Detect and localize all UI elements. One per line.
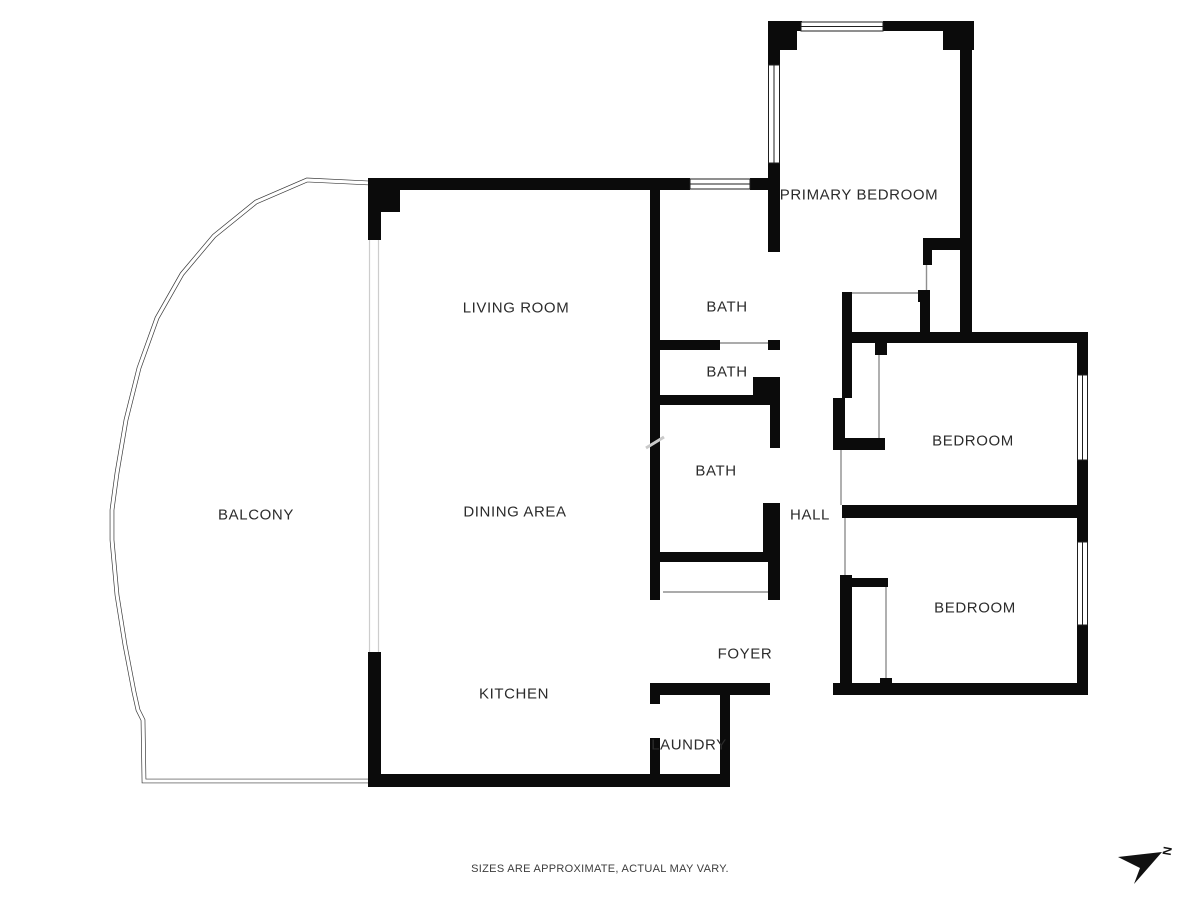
room-label-bedroom-2: BEDROOM <box>934 600 1016 617</box>
room-label-living-room: LIVING ROOM <box>463 300 570 317</box>
balcony-glass-wall <box>370 240 379 652</box>
room-label-balcony: BALCONY <box>218 507 294 524</box>
north-arrow-icon <box>1118 852 1162 884</box>
floor-plan-drawing <box>0 0 1200 900</box>
balcony-outline <box>112 180 370 781</box>
room-label-bath-2: BATH <box>706 364 747 381</box>
disclaimer-text: SIZES ARE APPROXIMATE, ACTUAL MAY VARY. <box>471 863 729 875</box>
room-label-kitchen: KITCHEN <box>479 686 549 703</box>
room-label-dining-area: DINING AREA <box>463 504 566 521</box>
room-label-laundry: LAUNDRY <box>651 737 727 754</box>
room-label-bath-1: BATH <box>706 299 747 316</box>
room-label-primary-bedroom: PRIMARY BEDROOM <box>780 187 938 204</box>
room-label-foyer: FOYER <box>718 646 773 663</box>
windows-layer <box>690 22 1088 625</box>
room-label-hall: HALL <box>790 507 830 524</box>
room-label-bath-3: BATH <box>695 463 736 480</box>
floor-plan: PRIMARY BEDROOM LIVING ROOM DINING AREA … <box>0 0 1200 900</box>
walls-layer <box>368 21 1088 787</box>
room-label-bedroom-1: BEDROOM <box>932 433 1014 450</box>
